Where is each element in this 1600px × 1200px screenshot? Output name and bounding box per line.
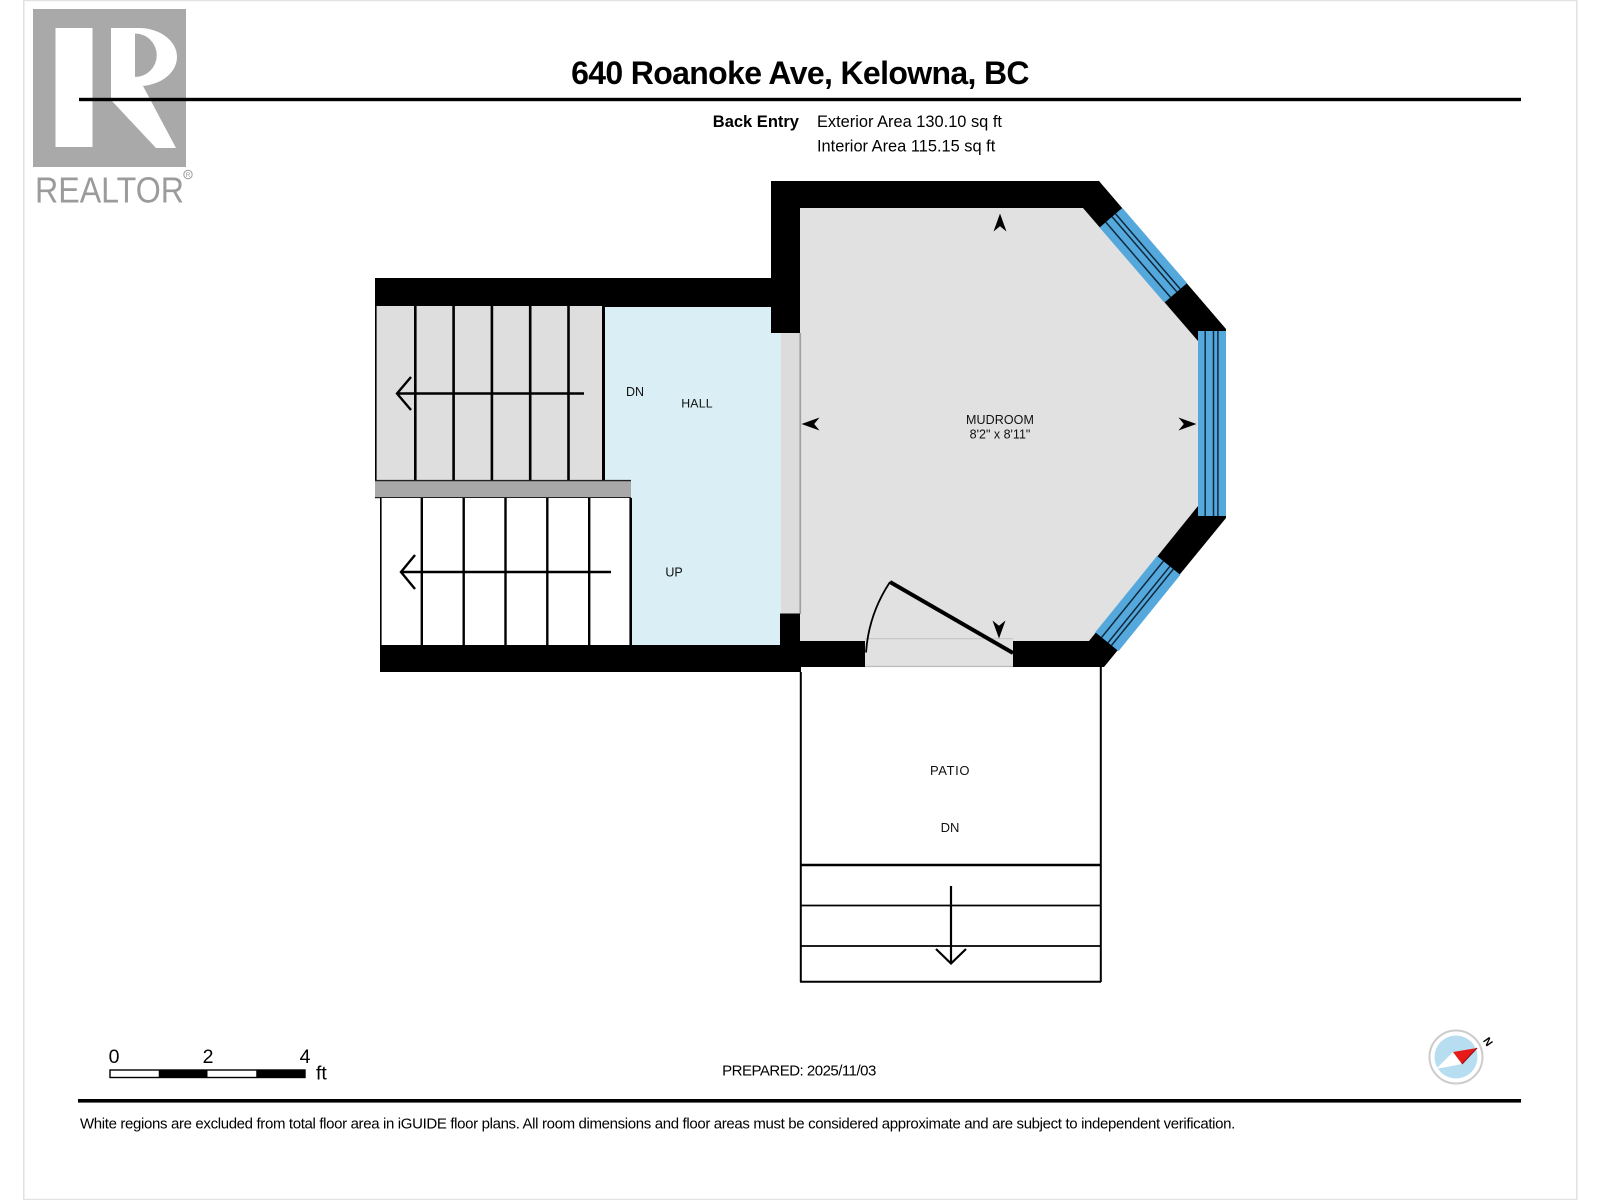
svg-text:ft: ft	[316, 1063, 327, 1085]
svg-text:HALL: HALL	[681, 397, 713, 411]
svg-text:DN: DN	[626, 385, 644, 399]
svg-text:White regions are excluded fro: White regions are excluded from total fl…	[80, 1116, 1235, 1133]
svg-text:Exterior Area 130.10 sq ft: Exterior Area 130.10 sq ft	[817, 113, 1002, 131]
svg-text:UP: UP	[665, 566, 682, 580]
svg-text:Interior Area 115.15 sq ft: Interior Area 115.15 sq ft	[817, 138, 996, 156]
svg-text:4: 4	[300, 1046, 311, 1068]
svg-text:REALTOR: REALTOR	[35, 170, 184, 211]
svg-text:PATIO: PATIO	[930, 763, 970, 778]
svg-text:PREPARED: 2025/11/03: PREPARED: 2025/11/03	[722, 1063, 876, 1080]
svg-text:640 Roanoke Ave, Kelowna, BC: 640 Roanoke Ave, Kelowna, BC	[571, 55, 1029, 91]
svg-text:2: 2	[203, 1046, 214, 1068]
svg-text:MUDROOM: MUDROOM	[966, 413, 1034, 427]
svg-text:8'2" x 8'11": 8'2" x 8'11"	[970, 428, 1031, 442]
svg-text:DN: DN	[941, 820, 960, 835]
svg-text:0: 0	[109, 1046, 120, 1068]
svg-text:R: R	[186, 172, 191, 179]
svg-text:Back Entry: Back Entry	[713, 113, 800, 131]
